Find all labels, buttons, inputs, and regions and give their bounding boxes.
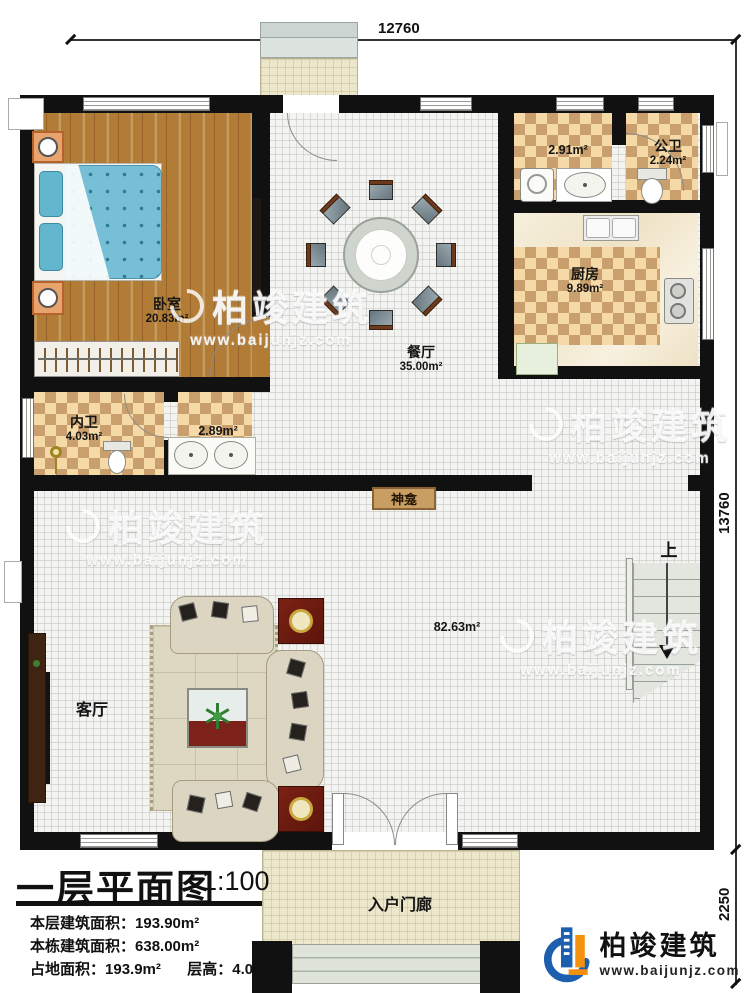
toilet-bowl [641,178,663,204]
kitchen-label: 厨房 9.89m² [540,266,630,297]
bedroom-label: 卧室 20.83m² [122,296,212,327]
canopy-band [260,22,358,38]
window-bath-top [638,97,674,111]
sofa-bottom [172,780,280,842]
dimension-top-value: 12760 [378,20,420,37]
window-living-bottom [80,834,158,848]
nightstand-lamp [38,137,58,157]
dimension-porch-value: 2250 [716,888,733,921]
window-kitchen-right [702,248,714,340]
stat-floor-area: 本层建筑面积：193.90m² [30,912,199,933]
dimension-line-top [70,39,736,41]
company-name: 柏竣建筑 [599,933,740,960]
shrine-label: 神龛 [391,489,417,508]
stairs-direction-line [666,563,668,645]
company-url: www.baijunjz.com [599,963,740,978]
company-logo-text: 柏竣建筑 www.baijunjz.com [599,933,740,978]
dining-label: 餐厅 35.00m² [376,344,466,375]
wall-kitchen-west [498,113,514,379]
table-lamp [289,797,313,821]
toilet-bowl [108,450,126,474]
stat-building-area: 本栋建筑面积：638.00m² [30,935,199,956]
pillow [39,171,63,217]
top-door-opening [283,95,339,113]
vanity-label: 2.89m² [186,424,250,439]
living-area-label: 82.63m² [420,620,494,635]
tv-cabinet [28,633,46,803]
sofa-cushion [291,691,309,709]
dining-chair [369,308,393,330]
sofa-cushion [241,605,259,623]
wall-bath-split [612,113,626,145]
kitchen-sink-basin [586,218,610,238]
window-sill [716,122,728,176]
table-lamp [289,609,313,633]
kitchen-sink-basin [612,218,636,238]
dimension-line-right [735,39,737,985]
canopy-band [260,38,358,58]
stairs-rail [626,558,633,690]
sink-drain [189,453,193,457]
dining-table-center [371,245,391,265]
living-label: 客厅 [52,701,132,720]
cabinet-plant [33,660,40,667]
sink-drain [229,453,233,457]
porch-pier [480,941,520,993]
stairs-up-label: 上 [656,541,682,561]
stove-burner [670,303,686,319]
company-logo: 柏竣建筑 www.baijunjz.com [540,920,740,990]
stairs-down-arrow [659,645,675,659]
plan-scale: 1:100 [202,866,270,897]
window-dining-top [420,97,472,111]
pillow [39,223,63,271]
dining-chair [434,243,456,267]
entrance-door-leaf [446,793,458,845]
window-bedroom-top [83,97,210,111]
stove-burner [670,283,686,299]
private-bath-label: 内卫 4.03m² [42,414,126,445]
stat-land-area: 占地面积：193.9m² 层高：4.0m [30,958,266,979]
shrine-cabinet: 神龛 [372,487,436,510]
laundry-label: 2.91m² [536,143,600,158]
window-sill [8,98,44,130]
plant-center [213,712,222,721]
sofa-cushion [215,791,234,810]
washing-machine-drum [527,174,547,194]
sink-drain [583,183,587,187]
window-living-bottom2 [462,834,518,848]
shower-stem [55,458,57,474]
shower-drain [50,446,62,458]
porch-steps [292,944,490,984]
dining-chair [306,243,328,267]
bedroom-tv-panel [253,198,261,312]
window-sill [4,561,22,603]
sofa-cushion [187,795,206,814]
company-logo-icon [540,924,591,986]
floor-plan-canvas: 12760 13760 2250 [0,0,750,993]
dining-chair [369,180,393,202]
public-bath-label: 公卫 2.24m² [636,138,700,169]
nightstand-lamp [38,288,58,308]
entrance-door-leaf [332,793,344,845]
dimension-right-value: 13760 [716,492,733,534]
wall-mid-stub [688,475,714,491]
wall-mid [20,475,532,491]
sofa-cushion [289,723,308,742]
fridge [516,343,558,375]
tv-screen [46,672,50,784]
porch-label: 入户门廊 [330,896,470,915]
wall-bedroom-south [20,377,270,392]
window-private-bath-left [22,398,34,458]
wardrobe-rod [38,358,176,360]
sofa-cushion [211,601,229,619]
title-underline [16,901,262,906]
window-bath-right [702,125,714,173]
window-laundry-top [556,97,604,111]
